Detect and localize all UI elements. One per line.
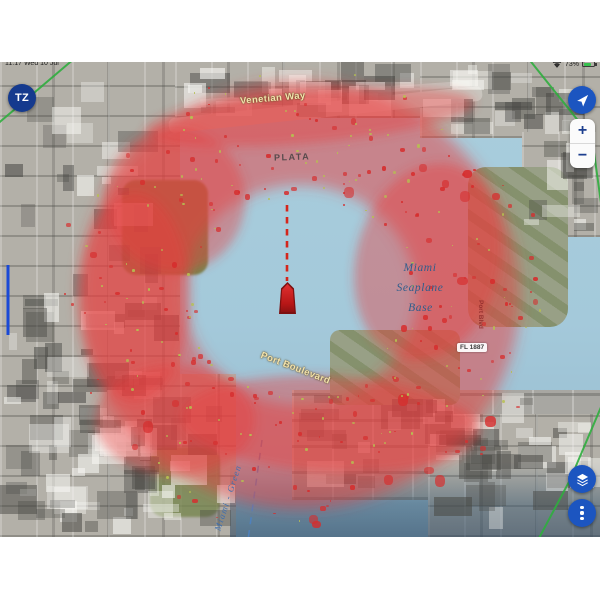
light-marker-badge[interactable]: FL 1887 — [457, 343, 487, 352]
tz-logo: TZ — [15, 92, 29, 104]
app-window: 11:17 Wed 10 Jul 73% Venetian Way PLATA … — [0, 0, 600, 600]
vertical-ellipsis-icon — [580, 506, 583, 521]
battery-icon — [582, 62, 595, 67]
layers-icon — [575, 472, 590, 487]
poi-label-miami: Miami — [380, 262, 460, 274]
own-ship-boat-icon[interactable] — [279, 282, 296, 314]
poi-label-base: Base — [383, 302, 458, 314]
zoom-out-button[interactable]: − — [570, 144, 595, 168]
poi-label-seaplane: Seaplane — [375, 282, 465, 294]
more-options-button[interactable] — [568, 499, 596, 527]
tz-menu-button[interactable]: TZ — [8, 84, 36, 112]
layers-button[interactable] — [568, 465, 596, 493]
road-label-plata: PLATA — [274, 151, 310, 162]
wifi-icon — [552, 62, 562, 68]
locate-button[interactable] — [568, 86, 596, 114]
road-label-port-vertical: Port Blvd — [477, 300, 484, 329]
road-label-port-boulevard: Port Boulevard — [259, 350, 332, 387]
map-canvas[interactable]: 11:17 Wed 10 Jul 73% Venetian Way PLATA … — [0, 62, 600, 537]
zoom-control: + − — [570, 119, 595, 168]
status-battery-percent: 73% — [565, 62, 579, 68]
status-datetime: 11:17 Wed 10 Jul — [5, 62, 59, 67]
navigation-arrow-icon — [575, 93, 590, 108]
status-bar: 11:17 Wed 10 Jul 73% — [0, 62, 600, 72]
zoom-in-button[interactable]: + — [570, 119, 595, 143]
